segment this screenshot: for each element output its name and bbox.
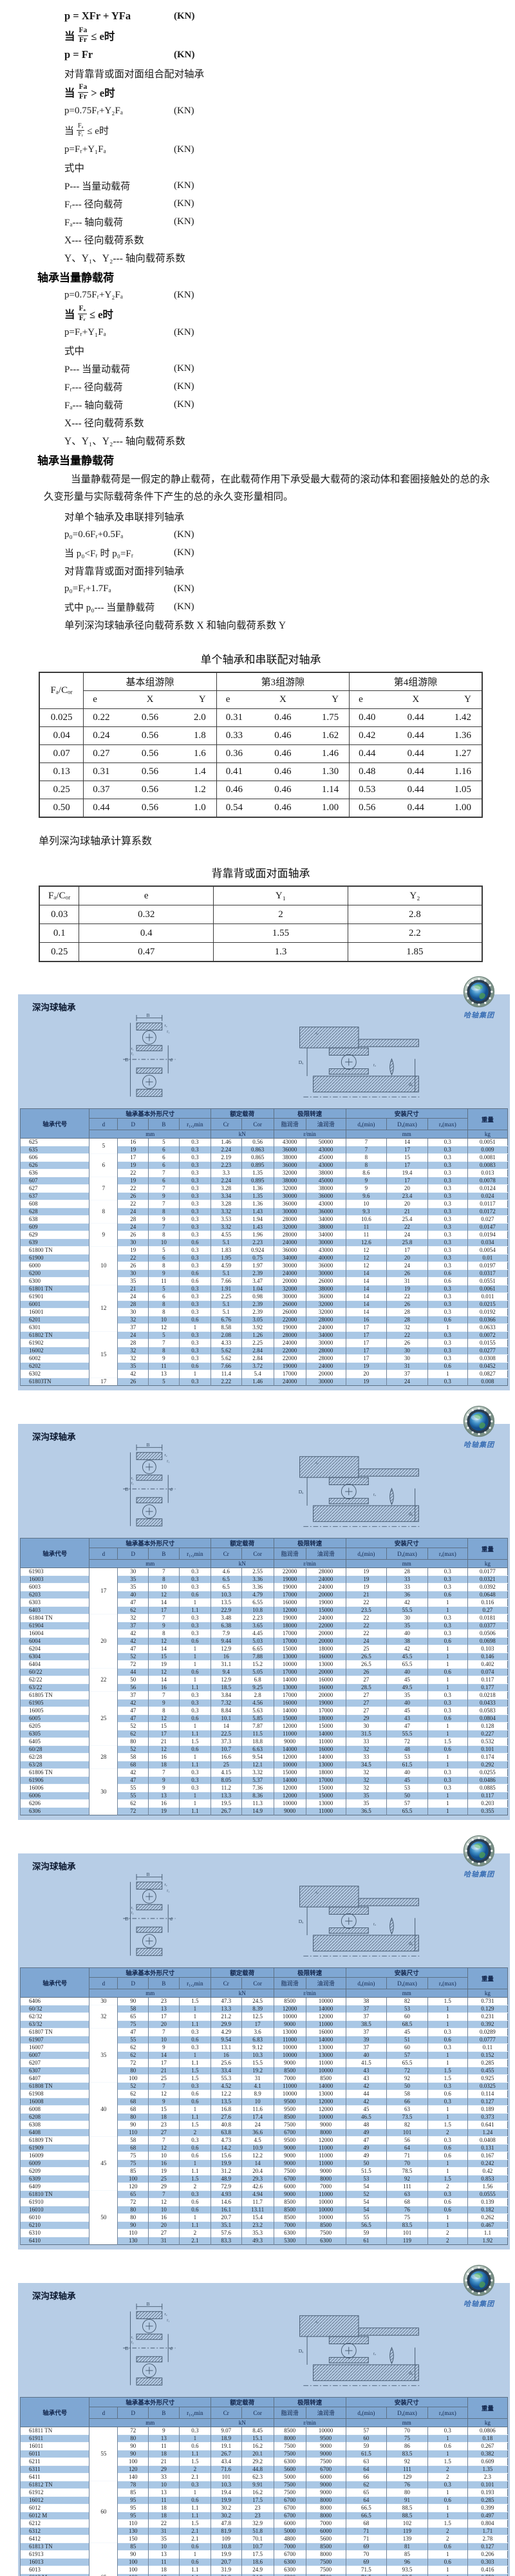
svg-text:r₂: r₂ [131, 1481, 134, 1485]
mounting-diagram: rₐ Dₐ rₐ dₐ [295, 1453, 424, 1531]
mounting-diagram: rₐ Dₐ rₐ dₐ [295, 1023, 424, 1102]
pair-row: 0.250.471.31.85 [39, 943, 482, 962]
svg-text:rₐ: rₐ [315, 2320, 318, 2324]
pair-table-caption: 背靠背或面对面轴承 [39, 864, 483, 880]
bearing-row: 60882270.33.281.36360004300010200.30.011… [21, 1200, 508, 1208]
bearing-row: 61809 TN455870.34.734.595001200047560.30… [21, 2137, 508, 2145]
svg-text:r₂: r₂ [165, 1454, 167, 1457]
svg-text:Dₐ: Dₐ [299, 1918, 304, 1924]
formula-line: 单列深沟球轴承径向载荷系数 X 和轴向载荷系数 Y [64, 616, 515, 634]
bearing-panel: 哈轴集团 深沟球轴承 B r₂ r₁ [18, 1424, 510, 1820]
panel-title: 深沟球轴承 [18, 2283, 510, 2302]
globe-logo-icon [462, 2264, 496, 2297]
bearing-section-diagram: B r₂ r₁ r₁ r₂ D d [115, 2302, 182, 2394]
svg-text:rₐ: rₐ [373, 2352, 376, 2356]
bearing-spec-table: 轴承代号轴承基本外形尺寸额定载荷极限转速安装尺寸重量dDBr₁,₂minCrCo… [20, 1967, 508, 2245]
formula-line: 当FaFr ≤ e时 [64, 26, 515, 45]
formula-line: 对背靠背或面对面组合配对轴承 [64, 64, 515, 82]
paired-bearing-table: Fₐ/CₒᵣeY₁Y₂0.030.3222.80.10.41.552.20.25… [39, 885, 483, 962]
svg-text:d: d [170, 2345, 173, 2351]
formula-line: p = Fr(KN) [64, 45, 515, 64]
factor-row: 0.0250.220.562.00.310.461.750.400.441.42 [39, 709, 482, 727]
svg-text:B: B [146, 1013, 149, 1018]
formula-section: p = XFr + YFa(KN)当FaFr ≤ e时p = Fr(KN)对背靠… [0, 4, 515, 634]
svg-text:dₐ: dₐ [409, 2370, 413, 2376]
globe-logo-icon [462, 975, 496, 1009]
bearing-section-diagram: B r₂ r₁ r₁ r₂ D d [115, 1872, 182, 1965]
formula-line: X--- 径向载荷系数 [64, 231, 515, 249]
bearing-row: 61803TN172650.32.221.46240003000019240.3… [21, 1378, 508, 1386]
svg-text:D: D [125, 1057, 129, 1063]
svg-text:r₂: r₂ [165, 1883, 167, 1887]
bearing-section-diagram: B r₂ r₁ r₁ r₂ D d [115, 1013, 182, 1106]
svg-text:rₐ: rₐ [315, 1461, 318, 1465]
bearing-row: 60/282852120.610.76.63140001600032480.60… [21, 1746, 508, 1754]
svg-text:dₐ: dₐ [409, 1511, 413, 1517]
svg-text:rₐ: rₐ [373, 1063, 376, 1068]
svg-text:r₁: r₁ [131, 1906, 134, 1910]
formula-line: p₀=0.6Fᵣ+0.5Fₐ(KN) [64, 526, 515, 544]
bearing-row: 61806 TN304270.34.153.32150001800032400.… [21, 1769, 508, 1777]
svg-text:d: d [170, 1486, 173, 1492]
factor-table-caption: 单个轴承和串联配对轴承 [39, 650, 483, 667]
panel-title: 深沟球轴承 [18, 1424, 510, 1443]
bearing-row: 61808 TN405270.34.524.1110001400042500.3… [21, 2083, 508, 2090]
bearing-catalog: 哈轴集团 深沟球轴承 B r₂ r₁ [0, 994, 515, 2576]
formula-line: p=Fᵣ+Y₁Fₐ(KN) [64, 140, 515, 158]
svg-text:Dₐ: Dₐ [299, 1059, 304, 1065]
svg-text:r₂: r₂ [165, 2313, 167, 2316]
factor-row: 0.130.310.561.40.410.461.300.480.441.16 [39, 763, 482, 781]
mounting-diagram: rₐ Dₐ rₐ dₐ [295, 1882, 424, 1961]
svg-text:B: B [146, 2302, 149, 2307]
panel-title: 深沟球轴承 [18, 1853, 510, 1872]
bearing-diagrams: B r₂ r₁ r₁ r₂ D d [18, 2302, 510, 2397]
svg-text:D: D [125, 1916, 129, 1922]
globe-logo-icon [462, 1834, 496, 1868]
bearing-row: 60/32325813113.38.391200014000375310.129 [21, 2005, 508, 2013]
formula-line: p = XFr + YFa(KN) [64, 6, 515, 26]
factor-row: 0.070.270.561.60.360.461.460.440.441.27 [39, 745, 482, 763]
formula-line: P--- 当量动载荷(KN) [64, 176, 515, 194]
pair-row: 0.10.41.552.2 [39, 924, 482, 943]
formula-line: Fᵣ--- 径向载荷(KN) [64, 377, 515, 395]
svg-text:dₐ: dₐ [409, 1081, 413, 1087]
load-factor-table: Fₐ/Cₒᵣ基本组游隙第3组游隙第4组游隙eXYeXYeXY0.0250.220… [39, 672, 483, 818]
svg-text:d: d [170, 1057, 173, 1063]
bearing-diagrams: B r₂ r₁ r₁ r₂ D d [18, 1443, 510, 1538]
bearing-row: 61802 TN152450.32.081.26280003400017220.… [21, 1332, 508, 1340]
formula-line: X--- 径向载荷系数 [64, 413, 515, 431]
bearing-row: 61801 TN122150.31.911.04320003800014190.… [21, 1285, 508, 1293]
svg-text:r₁: r₁ [131, 1477, 134, 1481]
pair-row: 0.030.3222.8 [39, 905, 482, 924]
bearing-row: 61805 TN253770.33.842.8170002000027350.3… [21, 1692, 508, 1700]
svg-text:r₂: r₂ [131, 1052, 134, 1056]
bearing-row: 60992470.33.321.43320003800011220.30.014… [21, 1224, 508, 1231]
svg-text:r₂: r₂ [131, 2340, 134, 2344]
bearing-row: 61807 TN354770.34.293.6130001600037450.3… [21, 2029, 508, 2036]
formula-line: 式中 [64, 158, 515, 176]
svg-text:rₐ: rₐ [315, 1890, 318, 1895]
formula-line: 轴承当量静载荷 [37, 450, 515, 469]
svg-text:B: B [146, 1443, 149, 1448]
bearing-row: 61804 TN203270.33.482.23190002400022300.… [21, 1615, 508, 1622]
formula-line: Y、Y₁、Y₂--- 轴向载荷系数 [64, 431, 515, 450]
bearing-spec-table: 轴承代号轴承基本外形尺寸额定载荷极限转速安装尺寸重量dDBr₁,₂minCrCo… [20, 1538, 508, 1815]
svg-text:B: B [146, 1872, 149, 1877]
formula-line: 式中 [64, 341, 515, 359]
factor-row: 0.040.240.561.80.330.461.620.420.441.36 [39, 727, 482, 745]
formula-line: 对单个轴承及串联排列轴承 [64, 507, 515, 526]
formula-line: 当量静载荷是一假定的静止载荷，在此载荷作用下承受最大载荷的滚动体和套圈接触处的总… [44, 471, 494, 506]
svg-text:Dₐ: Dₐ [299, 2348, 304, 2354]
bearing-row: 60/222244120.69.45.05170002000026400.60.… [21, 1669, 508, 1676]
factor-row: 0.250.370.561.20.460.461.140.530.441.05 [39, 781, 482, 799]
document-page: 当FₐFᵣ > e时 p = XFr + YFa(KN)当FaFr ≤ e时p … [0, 0, 515, 2576]
svg-text:D: D [125, 2345, 129, 2351]
svg-text:r₁: r₁ [167, 1889, 169, 1893]
bearing-section-diagram: B r₂ r₁ r₁ r₂ D d [115, 1443, 182, 1535]
svg-text:r₁: r₁ [167, 2318, 169, 2322]
panel-title: 深沟球轴承 [18, 994, 510, 1013]
svg-text:d: d [170, 1916, 173, 1922]
bearing-row: 60661760.32.190.86538000450008150.30.008… [21, 1154, 508, 1162]
svg-text:rₐ: rₐ [373, 1922, 376, 1927]
bearing-diagrams: B r₂ r₁ r₁ r₂ D d [18, 1872, 510, 1967]
formula-line: 当 p₀<Fᵣ 时 p₀=Fᵣ(KN) [64, 544, 515, 562]
formula-line: 式中 p₀--- 当量静载荷(KN) [64, 598, 515, 616]
svg-text:r₂: r₂ [131, 1911, 134, 1915]
formula-line: Fₐ--- 轴向载荷(KN) [64, 213, 515, 231]
svg-text:r₁: r₁ [131, 2336, 134, 2340]
svg-text:rₐ: rₐ [315, 1031, 318, 1036]
bearing-panel: 哈轴集团 深沟球轴承 B r₂ r₁ [18, 2283, 510, 2576]
bearing-row: 61903173070.34.62.55220002800019280.30.0… [21, 1568, 508, 1576]
bearing-row: 61810 TN506570.34.934.9490001100052630.3… [21, 2191, 508, 2199]
mounting-diagram: rₐ Dₐ rₐ dₐ [295, 2312, 424, 2391]
calc-factor-note: 单列深沟球轴承计算系数 [39, 832, 515, 848]
formula-line: p=Fᵣ+Y₁Fₐ(KN) [64, 323, 515, 341]
formula-line: p=0.75Fᵣ+Y₂Fₐ(KN) [64, 102, 515, 120]
svg-text:r₁: r₁ [131, 1047, 134, 1051]
formula-line: P--- 当量动载荷(KN) [64, 359, 515, 377]
formula-line: 当FₐFᵣ ≤ e时 [64, 120, 515, 140]
formula-line: p=0.75Fᵣ+Y₂Fₐ(KN) [64, 286, 515, 304]
bearing-row: 61811 TN557290.39.078.4585001000057700.3… [21, 2427, 508, 2435]
svg-text:r₂: r₂ [165, 1024, 167, 1028]
bearing-spec-table: 轴承代号轴承基本外形尺寸额定载荷极限转速安装尺寸重量dDBr₁,₂minCrCo… [20, 1108, 508, 1386]
svg-text:rₐ: rₐ [373, 1493, 376, 1497]
bearing-row: 61800 TN101950.31.830.924360004300012170… [21, 1247, 508, 1255]
bearing-row: 64063090231.547.324.585001000038821.50.7… [21, 1998, 508, 2005]
bearing-spec-table: 轴承代号轴承基本外形尺寸额定载荷极限转速安装尺寸重量dDBr₁,₂minCrCo… [20, 2397, 508, 2576]
formula-line: 轴承当量静载荷 [37, 267, 515, 286]
formula-line: p₀=Fᵣ+1.7Fₐ(KN) [64, 580, 515, 598]
formula-line: 当FₐFᵣ ≤ e时 [64, 304, 515, 323]
factor-row: 0.500.440.561.00.540.461.000.560.441.00 [39, 799, 482, 818]
formula-line: Fₐ--- 轴向载荷(KN) [64, 395, 515, 413]
svg-text:r₁: r₁ [167, 1459, 169, 1463]
svg-text:D: D [125, 1486, 129, 1492]
bearing-diagrams: B r₂ r₁ r₁ r₂ D d [18, 1013, 510, 1108]
formula-line: Y、Y₁、Y₂--- 轴向载荷系数 [64, 249, 515, 267]
bearing-row: 62551650.31.460.5643000500007140.30.0051 [21, 1139, 508, 1146]
formula-line: 当FaFr > e时 [64, 82, 515, 102]
bearing-row: 60771960.32.240.89538000450009170.30.007… [21, 1177, 508, 1185]
formula-line: Fᵣ--- 径向载荷(KN) [64, 194, 515, 213]
globe-logo-icon [462, 1405, 496, 1438]
bearing-panel: 哈轴集团 深沟球轴承 B r₂ r₁ [18, 994, 510, 1390]
bearing-row: 61812 TN6078100.310.39.917500900062760.3… [21, 2481, 508, 2489]
svg-text:dₐ: dₐ [409, 1940, 413, 1946]
svg-text:r₁: r₁ [167, 1030, 169, 1034]
svg-text:Dₐ: Dₐ [299, 1489, 304, 1495]
bearing-panel: 哈轴集团 深沟球轴承 B r₂ r₁ [18, 1853, 510, 2249]
formula-line: 对背靠背或面对面排列轴承 [64, 562, 515, 580]
bearing-row: 61813 TN6585100.610.810.77000850069810.6… [21, 2543, 508, 2551]
